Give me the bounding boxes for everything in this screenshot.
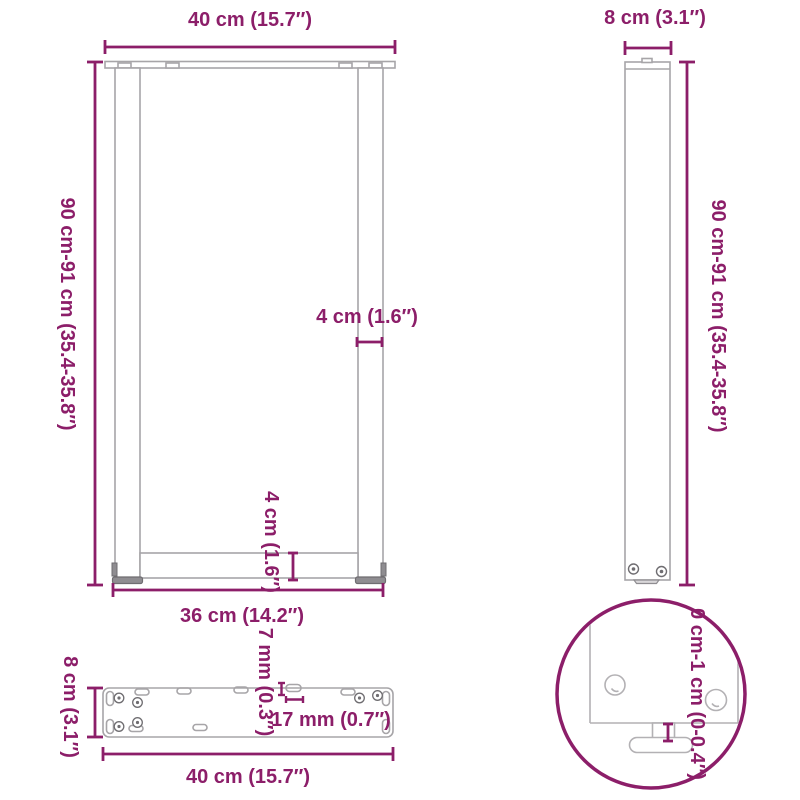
front-right-foot — [356, 577, 386, 584]
front-height-label: 90 cm-91 cm (35.4-35.8″) — [57, 197, 77, 430]
detail-screw — [706, 690, 727, 711]
plate-width-label: 40 cm (15.7″) — [186, 767, 310, 787]
diagram-linework — [0, 0, 800, 800]
detail-foot-adjust-label: 0 cm-1 cm (0-0.4″) — [687, 608, 707, 780]
dimension-lines — [87, 40, 695, 761]
side-depth-label: 8 cm (3.1″) — [604, 8, 706, 28]
front-crossbar-height-label: 4 cm (1.6″) — [261, 491, 281, 593]
front-left-leg — [115, 68, 140, 578]
side-view-drawing — [625, 59, 670, 584]
front-width-label: 40 cm (15.7″) — [188, 10, 312, 30]
side-height-label: 90 cm-91 cm (35.4-35.8″) — [708, 199, 728, 432]
detail-view-drawing — [557, 596, 745, 788]
dimension-diagram: 40 cm (15.7″) 8 cm (3.1″) 90 cm-91 cm (3… — [0, 0, 800, 800]
plate-depth-label: 8 cm (3.1″) — [60, 656, 80, 758]
plate-hole-length-label: 17 mm (0.7″) — [271, 710, 391, 730]
front-left-foot — [113, 577, 143, 584]
detail-foot-pad — [630, 738, 693, 753]
front-leg-thickness-label: 4 cm (1.6″) — [316, 307, 418, 327]
front-inner-width-label: 36 cm (14.2″) — [180, 606, 304, 626]
side-foot — [634, 580, 659, 584]
side-leg-body — [625, 62, 670, 580]
front-crossbar — [140, 553, 358, 578]
